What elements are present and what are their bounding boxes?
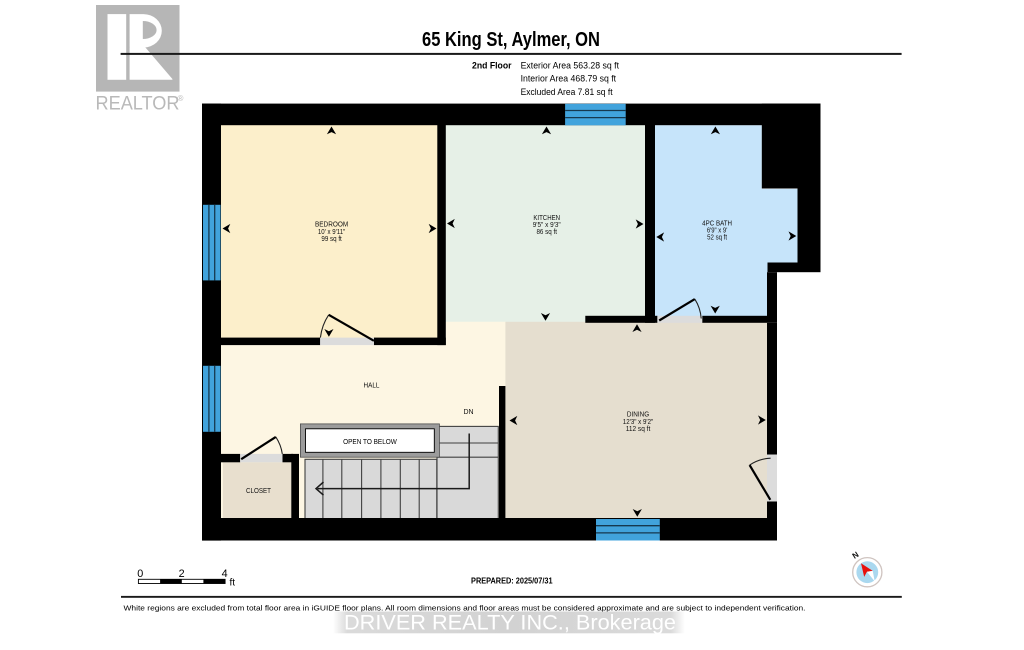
svg-text:DINING: DINING	[627, 411, 649, 418]
svg-text:DRIVER REALTY INC., Brokerage: DRIVER REALTY INC., Brokerage	[344, 610, 676, 634]
svg-text:10' x 9'11": 10' x 9'11"	[318, 229, 346, 236]
svg-text:DN: DN	[463, 409, 473, 416]
svg-text:9'5" x 9'3": 9'5" x 9'3"	[533, 222, 561, 229]
svg-text:112 sq ft: 112 sq ft	[626, 426, 651, 433]
svg-text:99 sq ft: 99 sq ft	[321, 236, 341, 243]
svg-text:Excluded Area 7.81 sq ft: Excluded Area 7.81 sq ft	[521, 87, 613, 97]
svg-text:2: 2	[179, 568, 185, 580]
svg-text:BEDROOM: BEDROOM	[315, 222, 348, 229]
svg-text:ft: ft	[230, 578, 236, 589]
svg-text:HALL: HALL	[364, 382, 380, 389]
svg-text:6'9" x 9': 6'9" x 9'	[707, 228, 728, 235]
svg-text:12'3" x 9'2": 12'3" x 9'2"	[623, 419, 654, 426]
svg-text:Interior Area 468.79 sq ft: Interior Area 468.79 sq ft	[521, 74, 617, 84]
svg-text:REALTOR: REALTOR	[96, 94, 180, 115]
svg-text:52 sq ft: 52 sq ft	[707, 235, 727, 242]
svg-text:®: ®	[178, 94, 184, 103]
svg-text:65 King St, Aylmer, ON: 65 King St, Aylmer, ON	[422, 28, 600, 51]
svg-text:CLOSET: CLOSET	[246, 488, 272, 495]
svg-text:4PC BATH: 4PC BATH	[702, 221, 732, 228]
svg-text:0: 0	[137, 568, 143, 580]
svg-text:KITCHEN: KITCHEN	[533, 215, 560, 222]
svg-text:86 sq ft: 86 sq ft	[536, 229, 557, 236]
svg-text:4: 4	[222, 568, 228, 580]
svg-text:Exterior Area 563.28 sq ft: Exterior Area 563.28 sq ft	[521, 60, 620, 70]
svg-text:2nd Floor: 2nd Floor	[472, 60, 512, 70]
svg-text:PREPARED: 2025/07/31: PREPARED: 2025/07/31	[471, 576, 553, 585]
svg-text:OPEN TO BELOW: OPEN TO BELOW	[343, 439, 397, 446]
